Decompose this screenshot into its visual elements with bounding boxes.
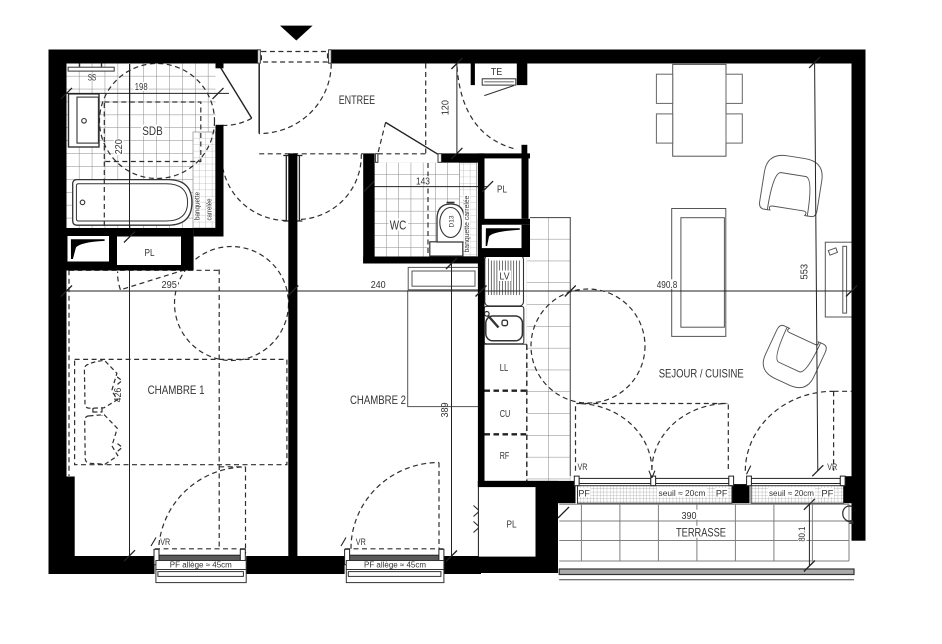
svg-text:VR: VR [356, 536, 366, 547]
svg-text:80.1: 80.1 [797, 527, 807, 542]
svg-text:CU: CU [500, 409, 511, 420]
svg-text:295: 295 [162, 280, 178, 291]
svg-text:TERRASSE: TERRASSE [676, 525, 726, 539]
svg-text:220: 220 [114, 139, 125, 155]
svg-text:VR: VR [827, 461, 837, 472]
svg-text:TE: TE [491, 66, 503, 78]
svg-text:banquette carrelée: banquette carrelée [463, 195, 471, 252]
svg-text:PL: PL [507, 519, 517, 531]
svg-text:ENTREE: ENTREE [339, 93, 375, 107]
svg-text:143: 143 [416, 177, 430, 188]
svg-text:390: 390 [682, 511, 697, 522]
svg-text:240: 240 [371, 280, 386, 291]
svg-text:PL: PL [497, 184, 507, 196]
svg-text:120: 120 [441, 100, 452, 116]
svg-text:490.8: 490.8 [657, 280, 678, 291]
svg-text:seuil ≈ 20cm: seuil ≈ 20cm [769, 488, 814, 498]
svg-text:CHAMBRE 2: CHAMBRE 2 [350, 393, 406, 407]
svg-text:LL: LL [500, 363, 509, 374]
svg-text:banquette: banquette [193, 192, 201, 220]
svg-text:PF allège ≈ 45cm: PF allège ≈ 45cm [364, 561, 426, 570]
svg-text:198: 198 [135, 82, 148, 93]
svg-text:389: 389 [440, 402, 451, 417]
svg-text:CHAMBRE 1: CHAMBRE 1 [148, 383, 205, 397]
svg-text:D13: D13 [449, 215, 456, 227]
svg-text:LV: LV [500, 272, 510, 283]
svg-text:PF: PF [821, 488, 834, 498]
svg-text:PF: PF [716, 488, 728, 498]
svg-text:SEJOUR / CUISINE: SEJOUR / CUISINE [659, 366, 744, 380]
svg-text:SDB: SDB [142, 124, 162, 138]
svg-text:PF: PF [578, 488, 590, 498]
svg-text:WC: WC [390, 218, 407, 233]
svg-text:RF: RF [500, 451, 510, 462]
svg-text:carrelée: carrelée [206, 198, 214, 220]
svg-text:PL: PL [145, 247, 155, 259]
svg-text:VR: VR [578, 461, 588, 472]
svg-text:VR: VR [160, 536, 170, 547]
svg-text:553: 553 [800, 263, 811, 279]
svg-text:426: 426 [113, 387, 124, 402]
svg-text:PF allège ≈ 45cm: PF allège ≈ 45cm [170, 561, 232, 570]
svg-text:SS: SS [88, 73, 97, 83]
svg-text:seuil ≈ 20cm: seuil ≈ 20cm [659, 488, 706, 498]
